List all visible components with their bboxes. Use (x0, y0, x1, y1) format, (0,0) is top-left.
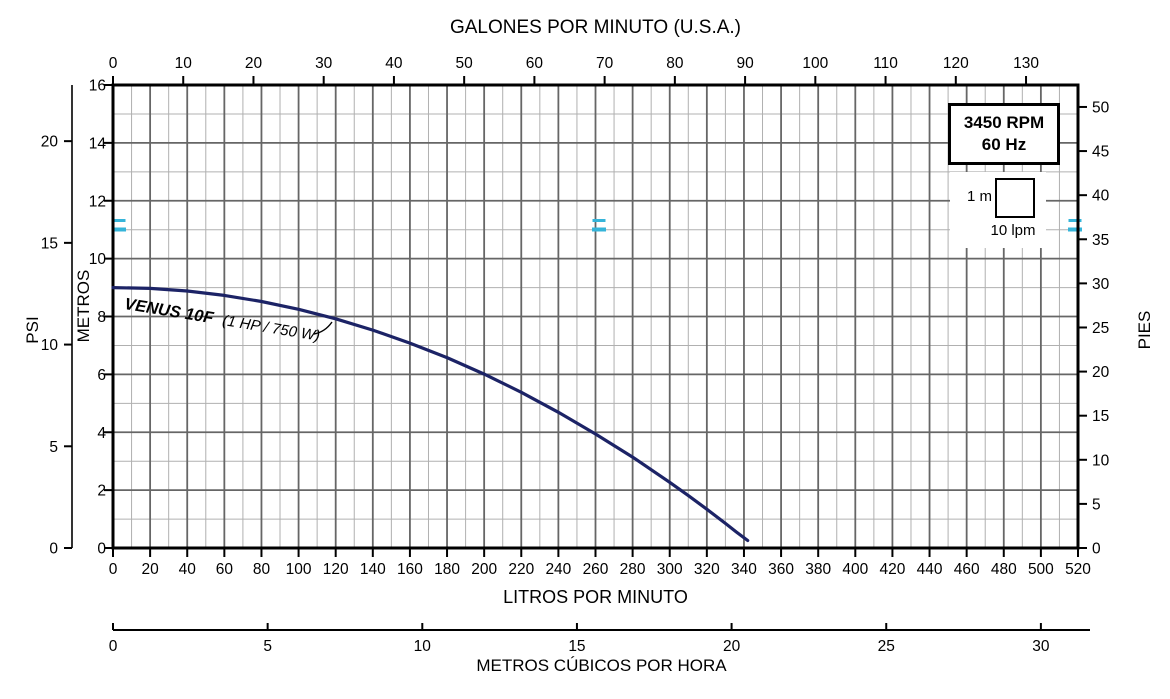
scale-vertical-label: 1 m (950, 188, 992, 205)
svg-text:60: 60 (526, 55, 544, 72)
svg-text:4: 4 (97, 425, 106, 442)
svg-text:30: 30 (315, 55, 333, 72)
svg-text:220: 220 (508, 561, 534, 578)
svg-text:100: 100 (802, 55, 828, 72)
scale-indicator: 1 m 10 lpm (950, 172, 1046, 248)
svg-text:130: 130 (1013, 55, 1039, 72)
svg-text:380: 380 (805, 561, 831, 578)
svg-text:320: 320 (694, 561, 720, 578)
svg-text:50: 50 (1092, 99, 1110, 116)
svg-text:16: 16 (89, 78, 106, 95)
svg-text:260: 260 (583, 561, 609, 578)
svg-text:20: 20 (141, 561, 159, 578)
svg-text:15: 15 (1092, 408, 1109, 425)
svg-text:480: 480 (991, 561, 1017, 578)
psi-axis-title: PSI (23, 316, 43, 343)
svg-text:60: 60 (216, 561, 234, 578)
svg-text:30: 30 (1032, 638, 1050, 655)
svg-text:15: 15 (41, 235, 58, 252)
svg-text:0: 0 (49, 541, 58, 558)
svg-text:440: 440 (917, 561, 943, 578)
svg-text:180: 180 (434, 561, 460, 578)
svg-text:80: 80 (666, 55, 684, 72)
svg-text:0: 0 (109, 561, 118, 578)
svg-text:0: 0 (109, 638, 118, 655)
svg-text:5: 5 (49, 439, 58, 456)
svg-text:0: 0 (1092, 541, 1101, 558)
svg-text:6: 6 (97, 367, 106, 384)
svg-text:2: 2 (97, 483, 106, 500)
top-axis-title: GALONES POR MINUTO (U.S.A.) (113, 17, 1078, 39)
svg-text:0: 0 (109, 55, 118, 72)
svg-text:14: 14 (89, 135, 107, 152)
svg-text:5: 5 (1092, 496, 1101, 513)
svg-text:340: 340 (731, 561, 757, 578)
svg-text:20: 20 (41, 134, 59, 151)
svg-text:30: 30 (1092, 276, 1110, 293)
svg-text:5: 5 (263, 638, 272, 655)
svg-text:0: 0 (97, 541, 106, 558)
svg-text:500: 500 (1028, 561, 1054, 578)
svg-text:10: 10 (89, 251, 107, 268)
svg-text:15: 15 (568, 638, 585, 655)
svg-text:8: 8 (97, 309, 106, 326)
svg-text:110: 110 (873, 55, 898, 72)
rpm-legend-line2: 60 Hz (982, 134, 1026, 156)
left-axis-title: METROS (74, 270, 94, 343)
bottom-axis-lpm: 0204060801001201401601802002202402602803… (109, 548, 1092, 578)
svg-text:10: 10 (175, 55, 193, 72)
right-axis-pies: 05101520253035404550 (1078, 99, 1110, 557)
svg-text:520: 520 (1065, 561, 1091, 578)
svg-text:400: 400 (842, 561, 868, 578)
bottom-axis-title: LITROS POR MINUTO (113, 587, 1078, 608)
svg-text:360: 360 (768, 561, 794, 578)
svg-text:140: 140 (360, 561, 386, 578)
right-axis-title: PIES (1135, 311, 1155, 350)
bottom2-axis-title: METROS CÚBICOS POR HORA (113, 656, 1090, 676)
top-axis-gpm: 0102030405060708090100110120130 (109, 55, 1040, 85)
svg-text:25: 25 (878, 638, 895, 655)
svg-text:40: 40 (1092, 188, 1110, 205)
svg-text:10: 10 (41, 337, 59, 354)
svg-text:40: 40 (385, 55, 403, 72)
svg-text:80: 80 (253, 561, 271, 578)
svg-text:10: 10 (414, 638, 432, 655)
svg-text:70: 70 (596, 55, 614, 72)
svg-text:45: 45 (1092, 144, 1109, 161)
svg-text:280: 280 (620, 561, 646, 578)
svg-text:420: 420 (879, 561, 905, 578)
svg-text:20: 20 (245, 55, 263, 72)
svg-text:100: 100 (286, 561, 312, 578)
svg-text:35: 35 (1092, 232, 1109, 249)
svg-text:25: 25 (1092, 320, 1109, 337)
svg-text:40: 40 (179, 561, 197, 578)
svg-text:240: 240 (545, 561, 571, 578)
svg-text:120: 120 (323, 561, 349, 578)
rpm-legend-line1: 3450 RPM (964, 112, 1044, 134)
svg-text:200: 200 (471, 561, 497, 578)
svg-text:50: 50 (456, 55, 474, 72)
svg-text:20: 20 (1092, 364, 1110, 381)
svg-text:90: 90 (736, 55, 754, 72)
scale-square (995, 178, 1035, 218)
psi-axis: 05101520 (41, 85, 72, 558)
svg-text:10: 10 (1092, 452, 1110, 469)
svg-text:160: 160 (397, 561, 423, 578)
pump-curve-chart: 0102030405060708090100110120130020406080… (0, 0, 1170, 699)
svg-text:20: 20 (723, 638, 741, 655)
svg-text:12: 12 (89, 193, 106, 210)
svg-text:300: 300 (657, 561, 683, 578)
svg-text:460: 460 (954, 561, 980, 578)
scale-horizontal-label: 10 lpm (980, 222, 1046, 239)
rpm-legend-box: 3450 RPM 60 Hz (948, 103, 1060, 165)
svg-text:120: 120 (943, 55, 969, 72)
bottom2-axis-m3h: 051015202530 (109, 623, 1090, 655)
